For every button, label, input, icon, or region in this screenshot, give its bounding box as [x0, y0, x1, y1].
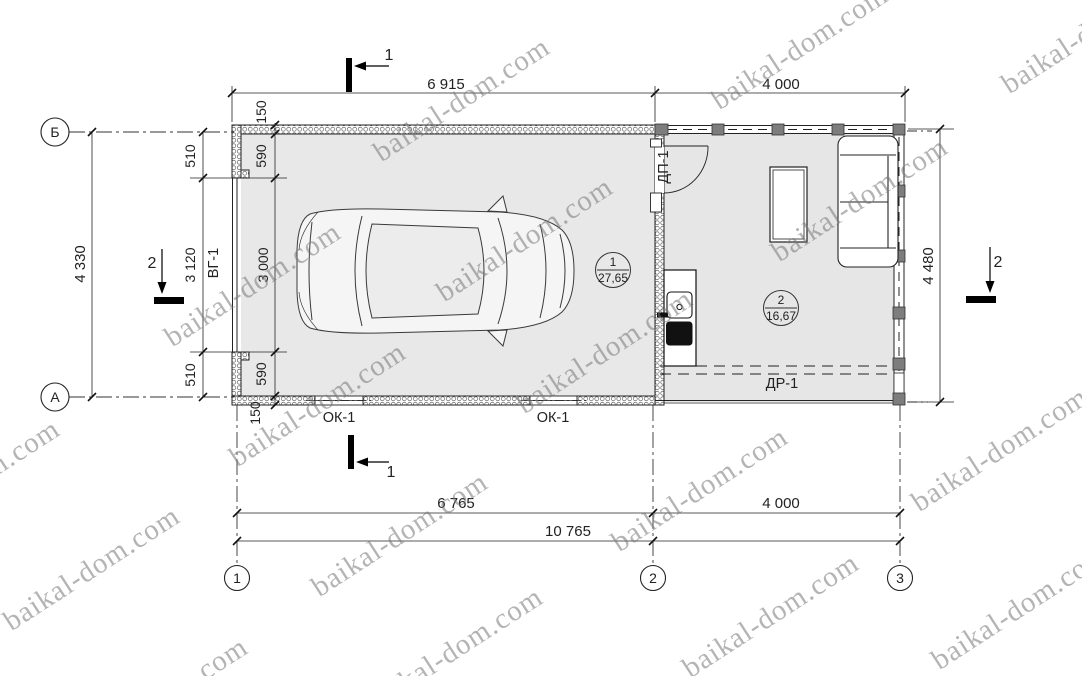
dim-left-510-top: 510: [182, 144, 198, 168]
garage-door-label: ВГ-1: [206, 248, 222, 278]
table: [770, 167, 807, 242]
axis-a-label: А: [50, 389, 60, 405]
dim-left-510-bottom: 510: [182, 363, 198, 387]
room-1-area: 27,65: [598, 271, 628, 285]
room-2-number: 2: [778, 293, 785, 307]
car: [297, 196, 574, 346]
floor-plan-canvas: 1 27,65 2 16,67 ВГ-1 ДП-1 ДР-1 ОК-1 ОК-1…: [0, 0, 1082, 676]
dim-inner-590-bottom: 590: [253, 362, 269, 386]
terrace-edge-label: ДР-1: [766, 376, 798, 392]
dim-bottom-garage: 6 765: [437, 495, 475, 512]
section-2-right-label: 2: [994, 254, 1003, 271]
room-stamp-1: 1 27,65: [596, 253, 631, 288]
dim-bottom-total: 10 765: [545, 523, 591, 540]
section-1-bottom-label: 1: [387, 464, 396, 481]
wall-left-top: [232, 125, 241, 178]
wall-bottom-3: [577, 396, 655, 405]
entry-door-label: ДП-1: [656, 150, 672, 183]
axis-2-label: 2: [649, 570, 657, 586]
window-right-label: ОК-1: [537, 410, 570, 426]
floor-plan-drawing: 1 27,65 2 16,67 ВГ-1 ДП-1 ДР-1 ОК-1 ОК-1…: [0, 0, 1082, 676]
dim-top-terrace: 4 000: [762, 76, 800, 93]
dim-bottom-terrace: 4 000: [762, 495, 800, 512]
dim-inner-3000: 3 000: [255, 247, 271, 282]
dim-top-garage: 6 915: [427, 76, 465, 93]
wall-top: [232, 125, 655, 134]
dim-right-total: 4 480: [920, 247, 937, 285]
section-1-top-label: 1: [385, 47, 394, 64]
dim-inner-150-top: 150: [253, 100, 269, 124]
jamb-bottom: [241, 352, 249, 360]
dim-left-3120: 3 120: [182, 247, 198, 282]
room-stamp-2: 2 16,67: [764, 291, 799, 326]
axis-b-label: Б: [50, 124, 59, 140]
section-2-left-label: 2: [148, 255, 157, 272]
dim-left-total: 4 330: [72, 245, 89, 283]
sofa: [838, 136, 898, 267]
faucet: [657, 313, 668, 318]
axis-1-label: 1: [233, 570, 241, 586]
dim-inner-590-top: 590: [253, 144, 269, 168]
corner-post-outline: [894, 373, 904, 396]
jamb-top: [241, 170, 249, 178]
garage-door: [233, 178, 238, 352]
room-2-area: 16,67: [766, 309, 796, 323]
stove: [667, 322, 693, 345]
axis-3-label: 3: [896, 570, 904, 586]
room-1-number: 1: [610, 255, 617, 269]
window-left-label: ОК-1: [323, 410, 356, 426]
dim-inner-150-bottom: 150: [247, 401, 263, 425]
wall-bottom-2: [363, 396, 530, 405]
